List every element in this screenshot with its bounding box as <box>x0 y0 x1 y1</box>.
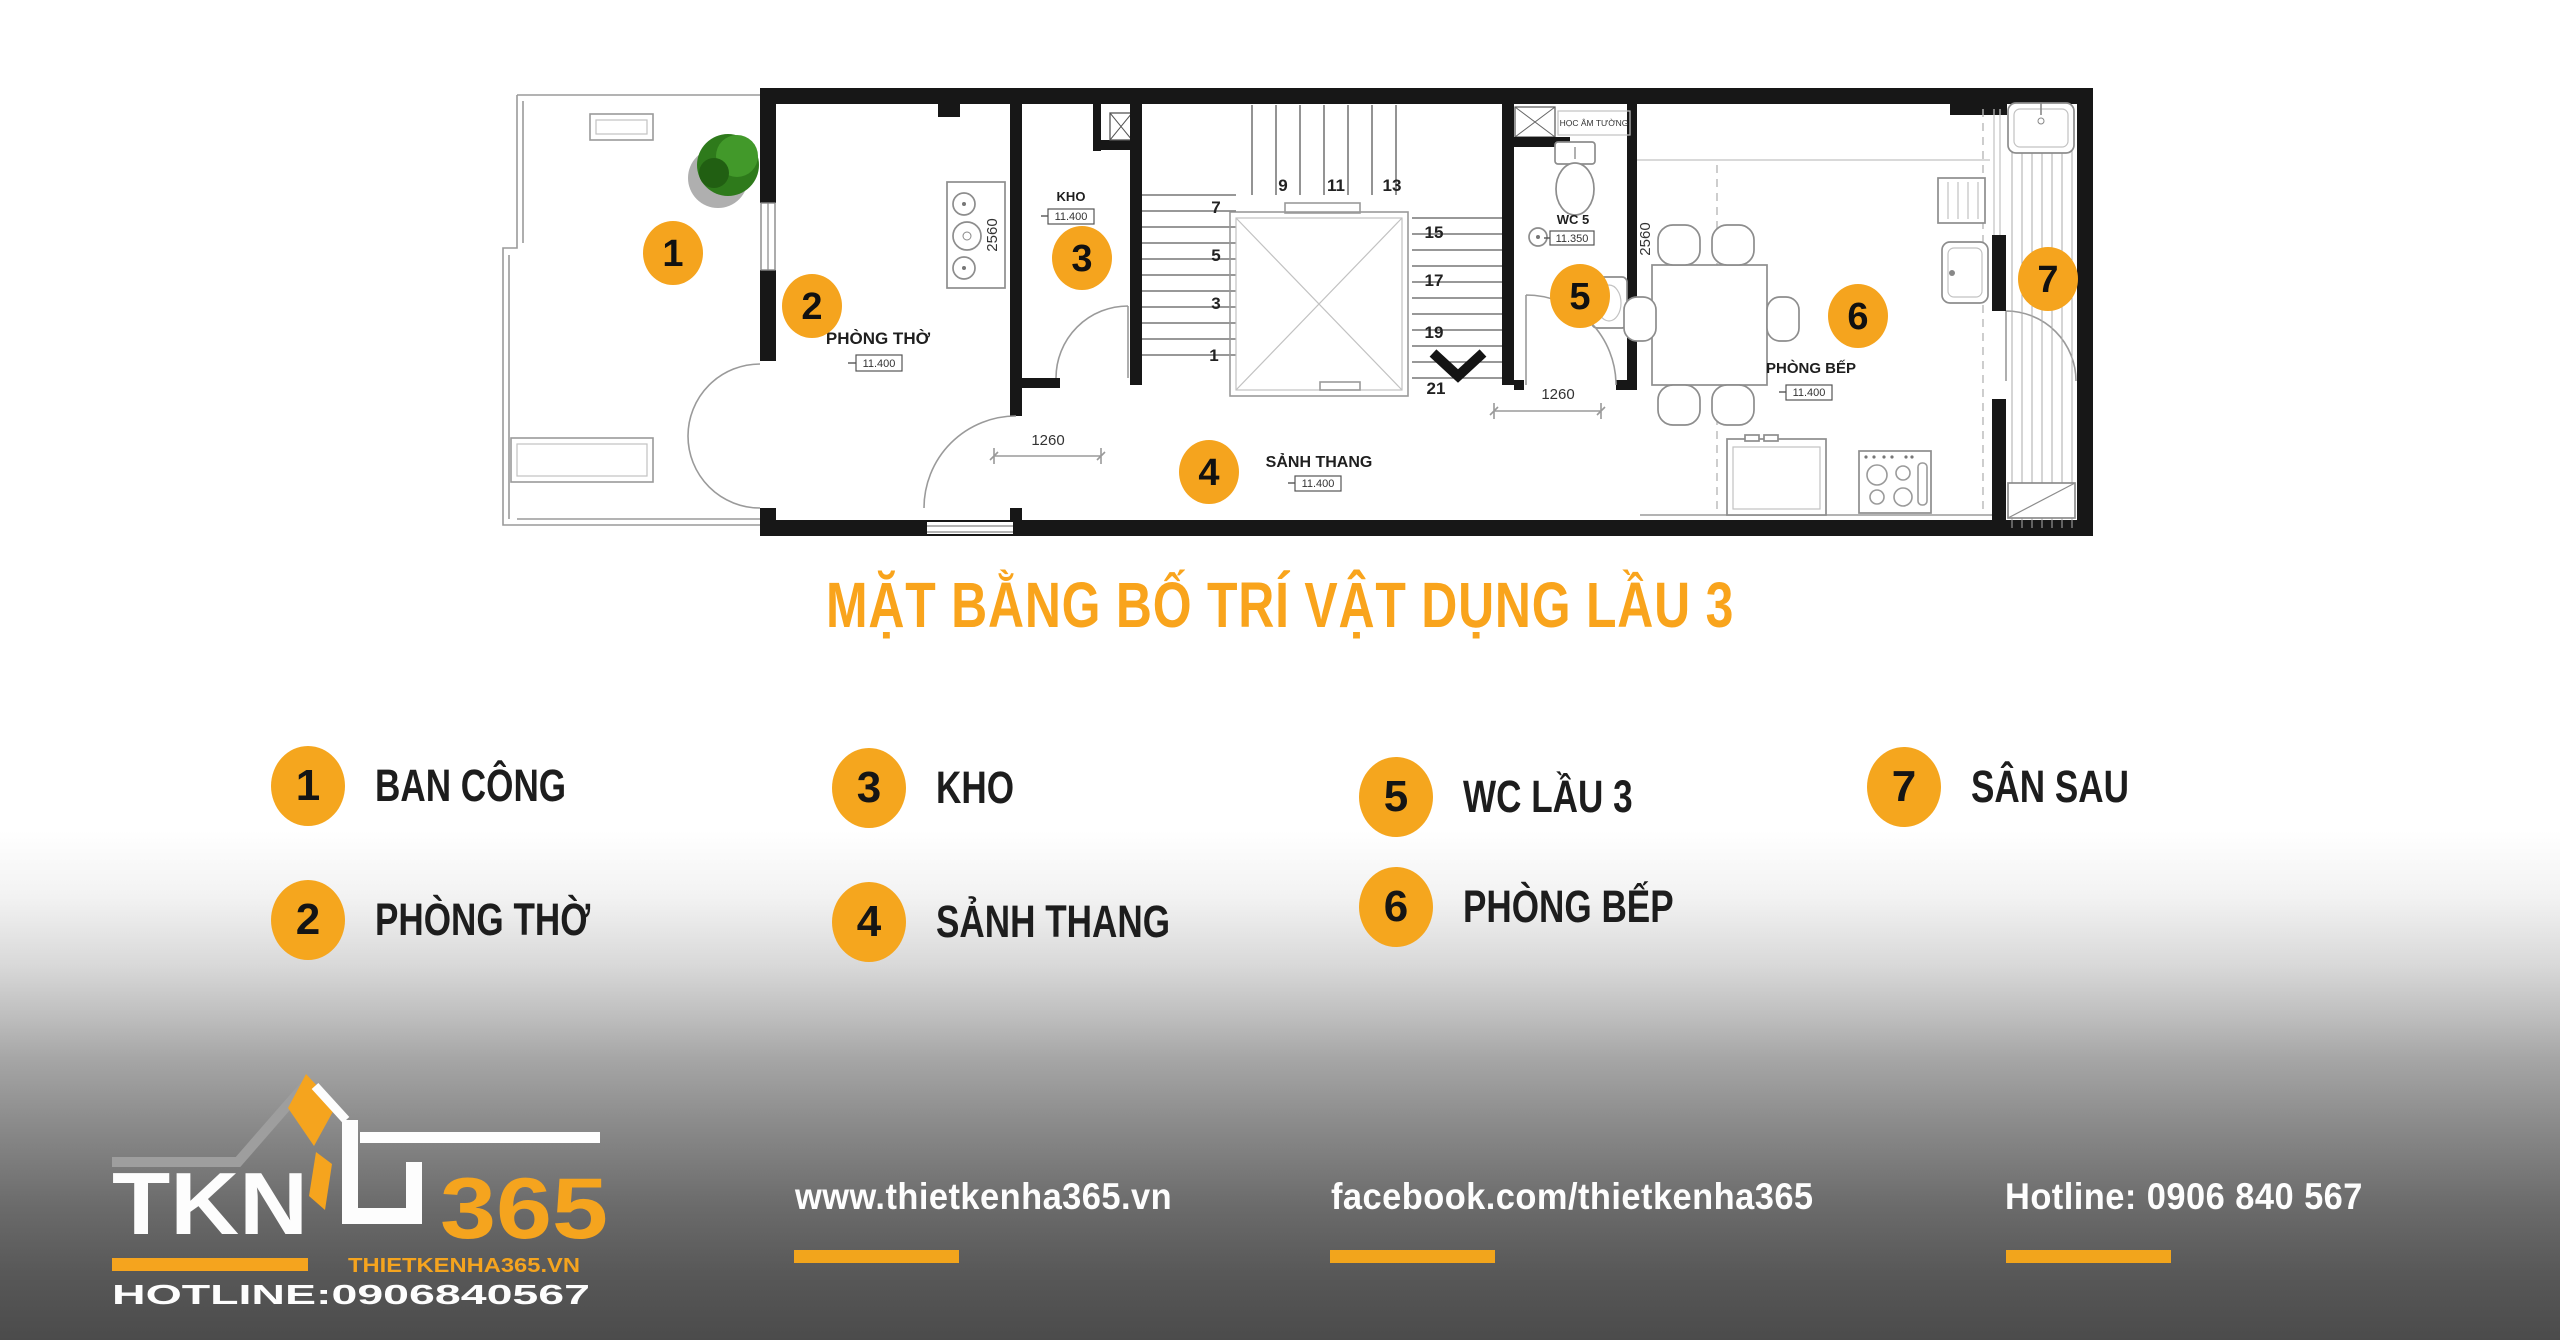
plan-marker-6: 6 <box>1828 284 1888 348</box>
svg-text:1260: 1260 <box>1031 432 1064 449</box>
footer-hotline-underline <box>2006 1250 2171 1263</box>
legend-num-7: 7 <box>1867 747 1941 827</box>
legend-num-2: 2 <box>271 880 345 960</box>
legend-num-1: 1 <box>271 746 345 826</box>
legend-num-3: 3 <box>832 748 906 828</box>
logo-365: 365 <box>440 1161 608 1257</box>
toilet-icon <box>1555 142 1595 215</box>
legend-num-5: 5 <box>1359 757 1433 837</box>
room-wc: HỌC ÂM TƯỜNG WC 5 11.350 <box>1502 103 1637 390</box>
svg-text:2: 2 <box>801 286 822 328</box>
room-phong-bep: 2560 PHÒNG BẾP 11.400 <box>1624 109 1992 515</box>
legend-label-4: SẢNH THANG <box>936 896 1170 948</box>
footer-hotline-text[interactable]: Hotline: 0906 840 567 <box>2005 1176 2363 1218</box>
plan-marker-4: 4 <box>1179 440 1239 504</box>
stair-num: 7 <box>1211 198 1220 217</box>
stair-num: 13 <box>1383 176 1402 195</box>
balcony <box>503 95 760 525</box>
room-san-sau <box>1992 103 2076 528</box>
stair-num: 3 <box>1211 294 1220 313</box>
footer-facebook-link[interactable]: facebook.com/thietkenha365 <box>1331 1176 1814 1218</box>
stair-num: 1 <box>1209 346 1218 365</box>
footer-website-link[interactable]: www.thietkenha365.vn <box>795 1176 1172 1218</box>
legend-item-2: 2 PHÒNG THỜ <box>271 880 651 960</box>
legend-label-3: KHO <box>936 762 1014 814</box>
plan-marker-5: 5 <box>1550 264 1610 328</box>
logo-site: THIETKENHA365.VN <box>348 1255 580 1277</box>
stair-num: 9 <box>1278 176 1287 195</box>
plan-marker-7: 7 <box>2018 247 2078 311</box>
room-sanh-level: 11.400 <box>1302 478 1335 490</box>
floor-plan: 2560 PHÒNG THỜ 11.400 KHO 11.400 7 5 <box>500 85 2120 545</box>
plan-marker-1: 1 <box>643 221 703 285</box>
legend-item-7: 7 SÂN SAU <box>1867 747 2174 827</box>
laundry-sink-icon <box>2008 103 2074 153</box>
kitchen-sink-icon <box>1942 242 1988 303</box>
room-kho-label: KHO <box>1057 189 1086 204</box>
svg-text:5: 5 <box>1569 276 1590 318</box>
legend-item-4: 4 SẢNH THANG <box>832 882 1236 962</box>
legend-label-1: BAN CÔNG <box>375 760 566 812</box>
legend-label-6: PHÒNG BẾP <box>1463 881 1674 933</box>
fridge-icon <box>1938 178 1985 223</box>
footer-website-underline <box>794 1250 959 1263</box>
room-wc-label: WC 5 <box>1557 212 1590 227</box>
stair-num: 19 <box>1425 323 1444 342</box>
legend-num-4: 4 <box>832 882 906 962</box>
legend-item-5: 5 WC LẦU 3 <box>1359 757 1681 837</box>
stair-num: 21 <box>1427 379 1446 398</box>
dim-kitchen: 2560 <box>1637 222 1654 255</box>
room-sanh-label: SẢNH THANG <box>1266 452 1373 471</box>
stair-num: 5 <box>1211 246 1220 265</box>
room-kho-level: 11.400 <box>1055 211 1088 223</box>
stove-icon <box>1859 451 1931 513</box>
legend-label-2: PHÒNG THỜ <box>375 894 590 946</box>
svg-text:1260: 1260 <box>1541 386 1574 403</box>
stair-num: 15 <box>1425 223 1444 242</box>
stair-num: 11 <box>1327 176 1345 195</box>
room-bep-level: 11.400 <box>1793 387 1826 399</box>
logo-tkn: TKN <box>112 1154 308 1253</box>
tree-icon <box>688 134 759 208</box>
svg-text:4: 4 <box>1198 452 1219 494</box>
svg-text:7: 7 <box>2037 259 2058 301</box>
svg-text:6: 6 <box>1847 296 1868 338</box>
legend-item-1: 1 BAN CÔNG <box>271 746 620 826</box>
stair-direction-arrow-icon <box>1433 353 1483 376</box>
kitchen-counter-icon <box>1640 435 1992 515</box>
niche-label: HỌC ÂM TƯỜNG <box>1560 118 1629 128</box>
room-bep-label: PHÒNG BẾP <box>1766 359 1856 377</box>
plan-marker-2: 2 <box>782 274 842 338</box>
logo-underline-bar <box>112 1258 308 1271</box>
legend-item-6: 6 PHÒNG BẾP <box>1359 867 1733 947</box>
footer-facebook-underline <box>1330 1250 1495 1263</box>
stair-num: 17 <box>1425 271 1444 290</box>
legend-item-3: 3 KHO <box>832 748 1036 828</box>
legend-label-7: SÂN SAU <box>1971 761 2129 813</box>
page-title: MẶT BẰNG BỐ TRÍ VẬT DỤNG LẦU 3 <box>0 568 2560 642</box>
legend-num-6: 6 <box>1359 867 1433 947</box>
svg-text:3: 3 <box>1071 238 1092 280</box>
dim-door-left: 1260 <box>990 432 1105 464</box>
room-tho-level: 11.400 <box>863 358 896 370</box>
dim-door-right: 1260 <box>1490 386 1605 419</box>
svg-text:1: 1 <box>662 233 683 275</box>
staircase: 7 5 3 1 9 11 13 15 17 19 21 <box>1142 105 1502 398</box>
room-tho-label: PHÒNG THỜ <box>826 329 931 348</box>
room-phong-tho: 2560 PHÒNG THỜ 11.400 <box>826 182 1005 371</box>
logo-hotline: HOTLINE:0906840567 <box>112 1279 590 1310</box>
plan-marker-3: 3 <box>1052 226 1112 290</box>
dim-altar: 2560 <box>984 218 1001 251</box>
room-wc-level: 11.350 <box>1556 233 1589 245</box>
tkn365-logo: TKN 365 THIETKENHA365.VN HOTLINE:0906840… <box>110 1062 610 1312</box>
room-sanh-thang: SẢNH THANG 11.400 1260 1260 <box>990 386 1605 491</box>
legend-label-5: WC LẦU 3 <box>1463 771 1633 823</box>
